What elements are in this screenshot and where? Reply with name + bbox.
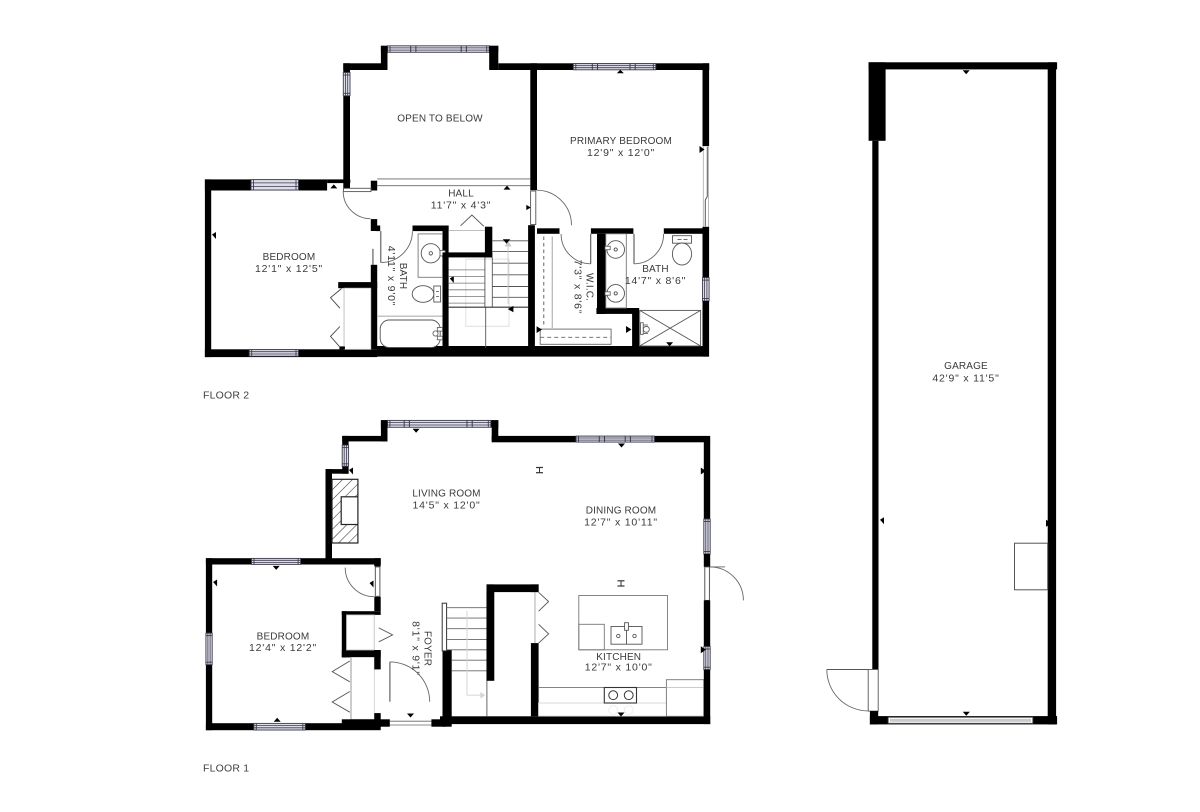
svg-text:12'4" x 12'2": 12'4" x 12'2" (249, 642, 317, 654)
svg-text:11'7" x 4'3": 11'7" x 4'3" (431, 200, 492, 212)
svg-text:14'5" x 12'0": 14'5" x 12'0" (413, 500, 481, 512)
svg-text:12'7" x 10'0": 12'7" x 10'0" (585, 661, 653, 673)
svg-text:PRIMARY BEDROOM: PRIMARY BEDROOM (570, 136, 672, 147)
svg-text:BATH: BATH (397, 263, 408, 290)
svg-text:OPEN TO BELOW: OPEN TO BELOW (397, 114, 483, 125)
svg-text:BEDROOM: BEDROOM (257, 632, 310, 643)
svg-text:GARAGE: GARAGE (944, 361, 988, 372)
svg-text:FOYER: FOYER (422, 631, 433, 666)
svg-text:12'1" x 12'5": 12'1" x 12'5" (255, 263, 323, 275)
svg-text:DINING ROOM: DINING ROOM (586, 506, 657, 517)
svg-text:FLOOR 2: FLOOR 2 (203, 390, 249, 402)
svg-text:W.I.C.: W.I.C. (584, 273, 595, 301)
svg-text:BEDROOM: BEDROOM (263, 252, 316, 263)
svg-text:14'7" x 8'6": 14'7" x 8'6" (625, 275, 686, 287)
svg-text:LIVING ROOM: LIVING ROOM (412, 489, 480, 500)
svg-text:BATH: BATH (642, 264, 669, 275)
svg-text:HALL: HALL (448, 189, 474, 200)
svg-text:4'11" x 9'0": 4'11" x 9'0" (385, 246, 397, 307)
svg-text:42'9" x 11'5": 42'9" x 11'5" (932, 373, 999, 385)
svg-text:FLOOR 1: FLOOR 1 (203, 763, 249, 775)
svg-text:7'3" x 8'6": 7'3" x 8'6" (572, 260, 584, 315)
svg-text:12'9" x 12'0": 12'9" x 12'0" (587, 147, 655, 159)
svg-text:12'7" x 10'11": 12'7" x 10'11" (584, 517, 658, 529)
svg-text:8'1" x 9'1": 8'1" x 9'1" (410, 621, 422, 676)
